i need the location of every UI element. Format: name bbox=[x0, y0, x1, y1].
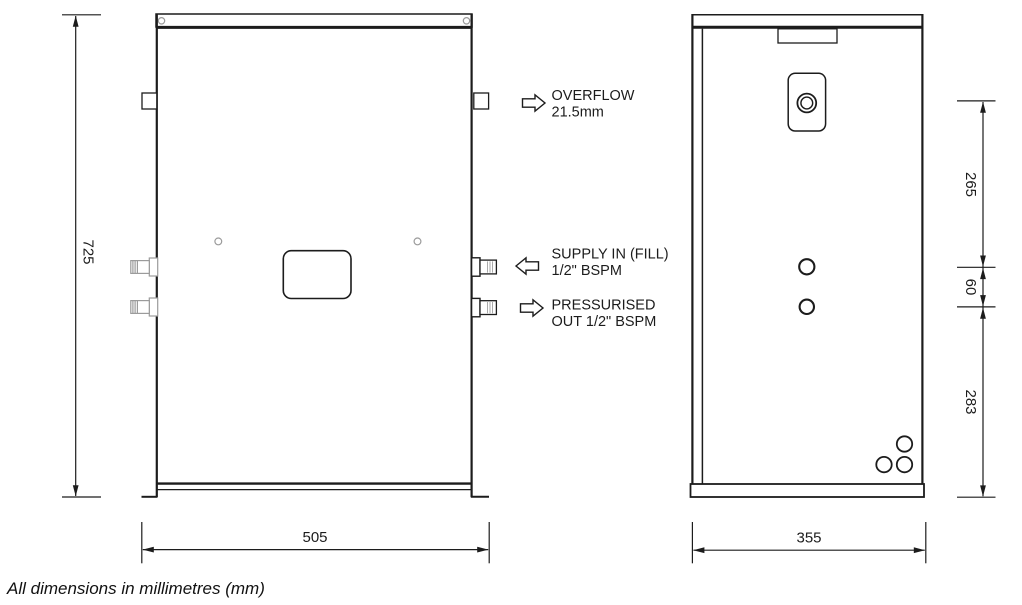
arrowhead-right-icon bbox=[477, 547, 488, 553]
dim-value-505: 505 bbox=[302, 529, 327, 546]
dimension-front-width: 505 bbox=[142, 522, 489, 563]
dim-value-60: 60 bbox=[962, 279, 979, 296]
face-hole-left bbox=[215, 238, 222, 245]
dimension-side-width: 355 bbox=[692, 522, 925, 563]
arrowhead-down-icon bbox=[980, 485, 986, 496]
side-bottom-hole-1 bbox=[897, 436, 912, 451]
face-hole-right bbox=[414, 238, 421, 245]
supply-in-fitting bbox=[472, 258, 497, 276]
arrowhead-up-icon bbox=[980, 308, 986, 319]
pressurised-out-fitting bbox=[472, 298, 497, 316]
front-lid-band bbox=[156, 14, 472, 27]
left-fitting-lower bbox=[131, 298, 158, 316]
lid-screw-right-icon bbox=[463, 18, 469, 24]
dim-value-283: 283 bbox=[962, 389, 979, 414]
overflow-arrow-right-icon bbox=[523, 95, 546, 111]
supply-label-line1: SUPPLY IN (FILL) bbox=[552, 247, 669, 263]
overflow-label-line1: OVERFLOW bbox=[552, 88, 635, 104]
side-view bbox=[691, 14, 925, 497]
side-fitting-plate bbox=[788, 73, 825, 131]
arrowhead-right-icon bbox=[914, 547, 925, 553]
arrowhead-up-icon bbox=[980, 268, 986, 279]
dim-value-725: 725 bbox=[80, 239, 97, 264]
side-hole-upper bbox=[799, 259, 814, 274]
technical-drawing-canvas: 725 505 355 265 60 283 OVE bbox=[0, 0, 1022, 605]
callout-pressurised-out: PRESSURISED OUT 1/2" BSPM bbox=[521, 298, 657, 331]
arrowhead-left-icon bbox=[693, 547, 704, 553]
units-note: All dimensions in millimetres (mm) bbox=[6, 579, 265, 598]
arrowhead-up-icon bbox=[73, 16, 79, 27]
supply-label-line2: 1/2" BSPM bbox=[552, 263, 622, 279]
callout-supply-in: SUPPLY IN (FILL) 1/2" BSPM bbox=[516, 247, 669, 280]
side-bottom-hole-3 bbox=[897, 457, 912, 472]
dim-value-355: 355 bbox=[796, 530, 821, 547]
supply-arrow-left-icon bbox=[516, 258, 539, 274]
drawing-svg: 725 505 355 265 60 283 OVE bbox=[0, 0, 1022, 605]
pressurised-label-line1: PRESSURISED bbox=[552, 298, 656, 314]
arrowhead-left-icon bbox=[143, 547, 154, 553]
arrowhead-down-icon bbox=[980, 295, 986, 306]
lid-screw-left-icon bbox=[158, 18, 164, 24]
arrowhead-down-icon bbox=[73, 485, 79, 496]
dimension-front-height: 725 bbox=[62, 15, 101, 497]
dimension-side-stack: 265 60 283 bbox=[957, 101, 996, 497]
arrowhead-up-icon bbox=[980, 102, 986, 113]
front-label-plate bbox=[283, 251, 351, 299]
overflow-stub-left bbox=[142, 93, 157, 109]
side-base-band bbox=[691, 484, 925, 497]
callout-overflow: OVERFLOW 21.5mm bbox=[523, 88, 635, 121]
pressurised-label-line2: OUT 1/2" BSPM bbox=[552, 314, 657, 330]
side-hole-lower bbox=[800, 300, 814, 314]
overflow-stub-right bbox=[474, 93, 489, 109]
overflow-label-line2: 21.5mm bbox=[552, 105, 604, 121]
side-bottom-hole-2 bbox=[876, 457, 891, 472]
left-fitting-upper bbox=[131, 258, 158, 276]
front-view bbox=[131, 14, 497, 497]
dim-value-265: 265 bbox=[962, 172, 979, 197]
side-top-notch bbox=[778, 29, 837, 43]
pressurised-arrow-right-icon bbox=[521, 300, 544, 316]
arrowhead-down-icon bbox=[980, 256, 986, 267]
